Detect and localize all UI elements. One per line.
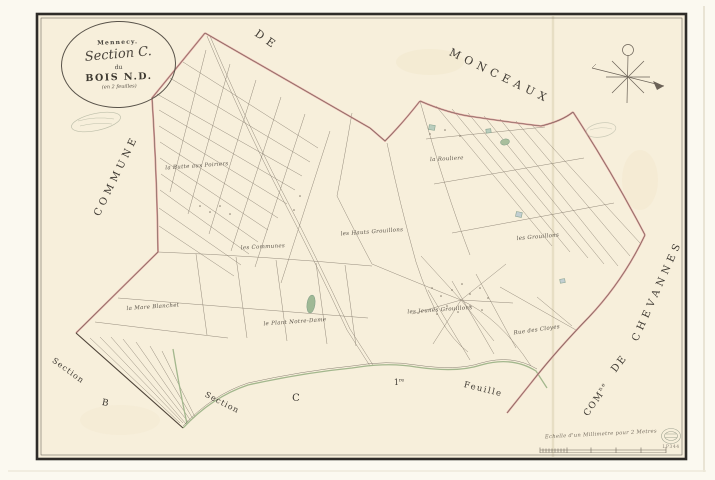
cartouche-du: du [115, 64, 123, 71]
cadastral-map-sheet: Mennecy. Section C. du BOIS N.D. (en 2 f… [0, 0, 715, 480]
cartouche-section-title: Section C. [84, 44, 152, 65]
cartouche-note: (en 2 feuilles) [102, 83, 137, 90]
section-c-letter: C [292, 394, 300, 404]
stamp-code: LP344 [662, 446, 679, 451]
feuille-ordinal-sup: re [399, 378, 404, 383]
cartouche-place-name: BOIS N.D. [85, 71, 153, 84]
section-b-letter: B [101, 399, 109, 409]
feuille-ordinal: 1re [394, 379, 404, 387]
